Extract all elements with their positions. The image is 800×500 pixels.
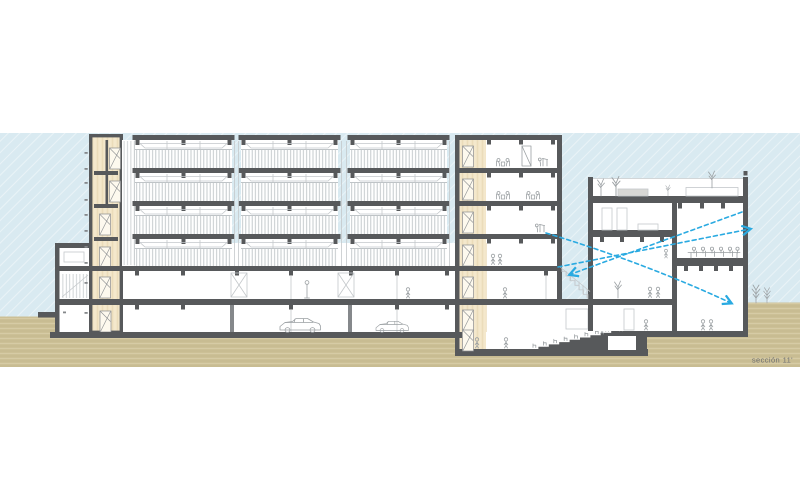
level-tick — [63, 312, 66, 314]
core-door — [463, 330, 474, 351]
core-door — [463, 245, 474, 266]
core-door — [463, 179, 474, 200]
east-wall — [557, 135, 562, 299]
section-canvas: sección 11' — [0, 0, 800, 500]
base-slab — [645, 331, 748, 337]
meeting-floor-slab — [677, 258, 743, 266]
ground-band — [0, 337, 800, 367]
plaza-ledge — [38, 312, 55, 318]
elevator-door — [100, 247, 111, 268]
planter-gray — [618, 189, 648, 196]
section-label: sección 11' — [752, 356, 793, 365]
column — [230, 305, 234, 332]
core-door — [463, 277, 474, 298]
stair-core-2 — [455, 135, 486, 351]
elevator-door — [110, 181, 121, 202]
elevator-door — [100, 311, 111, 332]
mezzanine-slab — [593, 230, 672, 237]
wing-wall — [55, 243, 60, 338]
architectural-section-drawing: sección 11' — [0, 0, 800, 500]
elevator-door — [100, 277, 111, 298]
roof-slab — [588, 196, 748, 203]
core-door — [463, 310, 474, 331]
floor-slab-upper — [55, 266, 562, 271]
parapet-tick — [744, 171, 748, 176]
balcony-bays — [133, 135, 450, 267]
column — [348, 305, 352, 332]
understair-opening — [608, 336, 636, 350]
elevator-door — [110, 148, 121, 169]
core-door — [463, 146, 474, 167]
elevator-door — [100, 214, 111, 235]
base-slab — [50, 332, 462, 338]
interior-wall — [672, 203, 677, 331]
ground-deck-slab — [55, 299, 672, 305]
core-door — [463, 212, 474, 233]
